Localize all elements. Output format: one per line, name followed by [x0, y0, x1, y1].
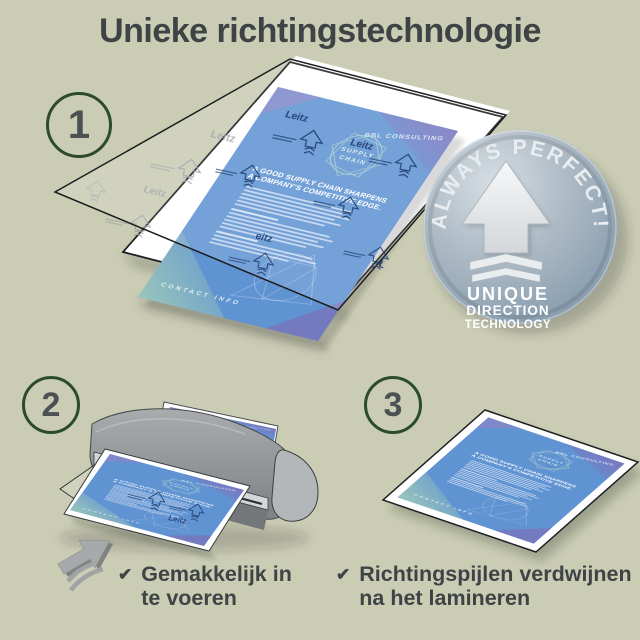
laminating-pouch-infographic: BBL CONSULTING SUPPLY CHAIN A GOOD SUPPL… [0, 0, 640, 640]
check-icon: ✔ [118, 565, 132, 611]
badge-line1: UNIQUE [467, 284, 549, 304]
checklist-item-easy-feed: ✔ Gemakkelijk in te voeren [118, 562, 309, 611]
step-1-illustration: Leitz Leitz Leitz Leitz Leitz [40, 55, 640, 375]
checklist-item-arrows-disappear: ✔ Richtingspijlen verdwijnen na het lami… [336, 562, 640, 611]
laminated-document [383, 410, 638, 552]
badge-line3: TECHNOLOGY [465, 319, 551, 331]
check-icon: ✔ [336, 565, 350, 611]
page-title: Unieke richtingstechnologie [0, 12, 640, 51]
always-perfect-badge: ALWAYS PERFECT! UNIQUE DIRECTION TECHNOL… [423, 130, 628, 334]
badge-line2: DIRECTION [466, 303, 549, 318]
checklist-label: Gemakkelijk in te voeren [141, 562, 309, 611]
checklist-label: Richtingspijlen verdwijnen na het lamine… [359, 562, 640, 611]
laminator-end-cap [272, 450, 318, 521]
